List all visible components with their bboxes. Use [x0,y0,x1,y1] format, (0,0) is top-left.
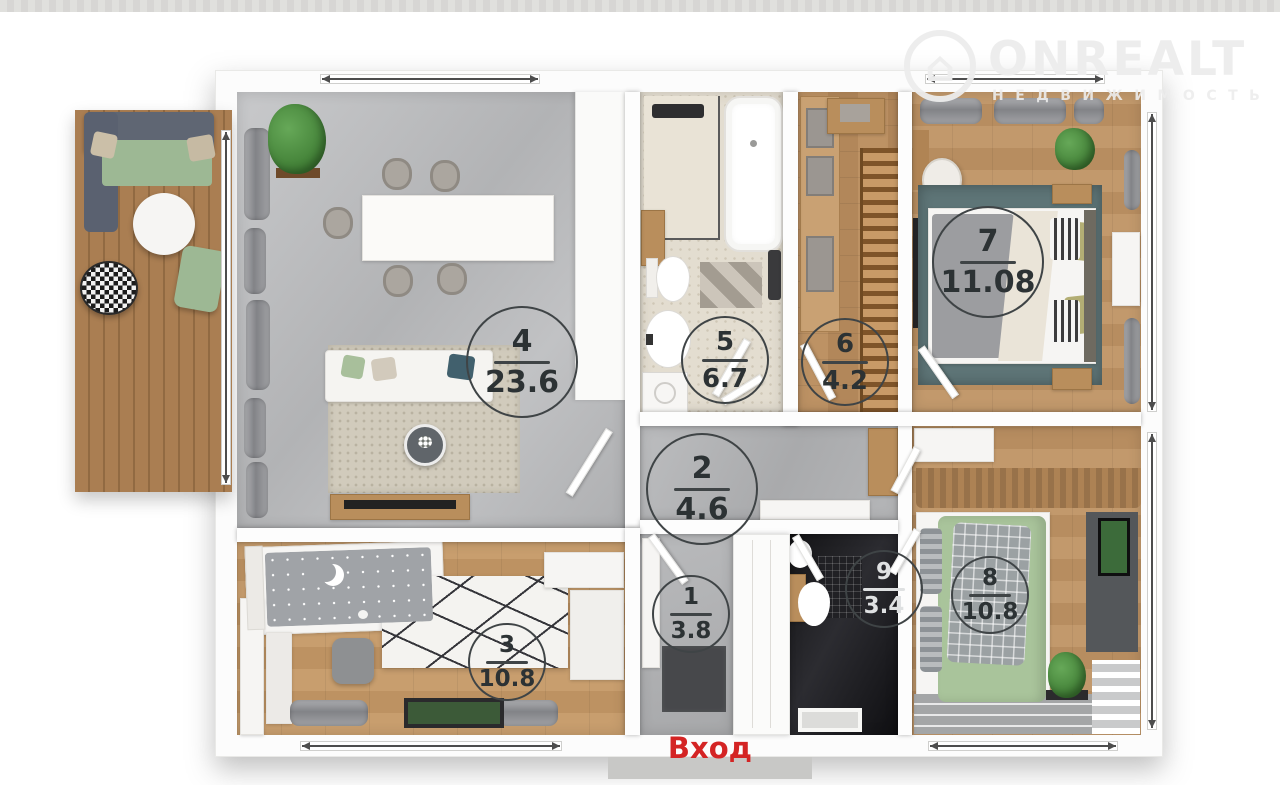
window-dimension-arrow [322,78,538,80]
room-area: 4.2 [822,368,868,394]
tv [344,500,456,509]
fraction-line [674,488,730,491]
fraction-line [822,361,868,364]
room-number: 2 [692,454,713,484]
room-area: 10.8 [962,601,1019,624]
floorplan-page: { "watermark": { "brand": "ONREALT", "su… [0,0,1280,785]
shower-drain [798,708,862,732]
window-dimension-arrow [930,745,1116,747]
bathtub-drain [750,140,757,147]
nightstand [1052,184,1092,204]
room-marker-3: 3 10.8 [468,623,546,701]
door-mat [662,646,726,712]
kids-cabinet [570,590,624,680]
window-dimension-arrow [225,132,227,483]
top-edge-band [0,0,1280,12]
curtain [246,462,268,518]
towel-rack [768,250,781,300]
watermark-brand: ONREALT [988,32,1247,87]
curtain [290,700,368,726]
room-number: 7 [978,227,999,257]
curtain [498,700,558,726]
room-marker-4: 4 23.6 [466,306,578,418]
kids-desk [544,552,624,588]
headboard [1084,210,1096,362]
room-number: 3 [499,634,515,657]
tall-cabinet [575,92,625,400]
watermark-subtitle: НЕДВИЖИМОСТЬ [992,88,1271,104]
curtain [246,300,270,390]
watermark-house-icon: ⌂ [904,30,976,102]
window-dimension-arrow [1151,114,1153,410]
room-area: 23.6 [485,368,559,398]
room-marker-9: 9 3.4 [845,550,923,628]
window-dimension-arrow [1151,434,1153,728]
wall [625,92,640,535]
deck-pillow [90,131,118,159]
fraction-line [486,661,528,664]
kids-headboard [245,546,266,631]
room-area: 10.8 [479,668,536,691]
closet-door-seam [752,540,753,728]
room-marker-6: 6 4.2 [801,318,889,406]
pillow-striped [920,606,942,672]
coffee-table-flowers [418,436,432,448]
fraction-line [969,594,1011,597]
room-area: 3.8 [671,620,712,643]
room-marker-8: 8 10.8 [951,556,1029,634]
drawer [806,156,834,196]
bathtub [724,96,783,252]
room-number: 9 [876,561,892,584]
stool [430,160,460,192]
closet-block [733,534,790,735]
kids-bedding-stars [265,547,433,627]
fraction-line [863,588,905,591]
pillow-striped [1050,300,1080,342]
fraction-line [494,361,550,364]
deck-houndstooth-pouf [80,261,138,315]
closet-door-seam [770,540,771,728]
wall [625,528,640,735]
hall-cabinet [760,500,870,520]
stool [323,207,353,239]
curtain [1124,150,1140,210]
room-marker-1: 1 3.8 [652,575,730,653]
entrance-label: Вход [630,731,790,765]
window-dimension-arrow [302,745,560,747]
wardrobe-clothes [916,468,1141,508]
washer-drum [654,382,676,404]
wall [640,412,1141,426]
shower-fixture [652,104,704,118]
curtain [1124,318,1140,404]
room-number: 6 [836,331,854,357]
room-area: 11.08 [941,268,1036,298]
room-number: 1 [683,586,699,609]
sofa-pillow-beige [371,356,398,381]
curtain [244,128,270,220]
room-number: 5 [716,329,734,355]
room-area: 4.6 [675,495,728,525]
curtain [920,98,982,124]
kids-wardrobe [266,632,292,724]
wall-art [1098,518,1130,576]
room-area: 3.4 [864,595,905,618]
plant [268,104,326,174]
house-icon: ⌂ [925,42,955,91]
drawer [806,236,834,292]
room-marker-7: 7 11.08 [932,206,1044,318]
room-marker-5: 5 6.7 [681,316,769,404]
nightstand [1052,368,1092,390]
stool [437,263,467,295]
curtain [244,228,266,294]
sofa-pillow-green [340,354,365,379]
pillow-striped [920,528,942,594]
plant [1048,652,1086,698]
dresser [1112,232,1140,306]
wall [237,528,640,542]
bath-mat [700,262,762,308]
deck-pillow [186,134,216,162]
room-marker-2: 2 4.6 [646,433,758,545]
console-pad [840,104,870,122]
room-number: 8 [982,567,998,590]
stool [382,158,412,190]
fraction-line [670,613,712,616]
fraction-line [960,261,1016,264]
room-area: 6.7 [702,366,748,392]
wall [783,92,798,426]
fraction-line [702,359,748,362]
stool [383,265,413,297]
pouf [332,638,374,684]
sink-tap [646,334,653,345]
pillow-striped [1050,218,1080,260]
plant [1055,128,1095,170]
teddy-decor [358,610,368,619]
moon-mask [316,562,336,582]
curtain [244,398,266,458]
room-number: 4 [512,327,533,357]
closet-shelf [914,428,994,462]
kitchen-island [362,195,554,261]
floor-picture [404,698,504,728]
radiator-sill [1092,660,1140,734]
